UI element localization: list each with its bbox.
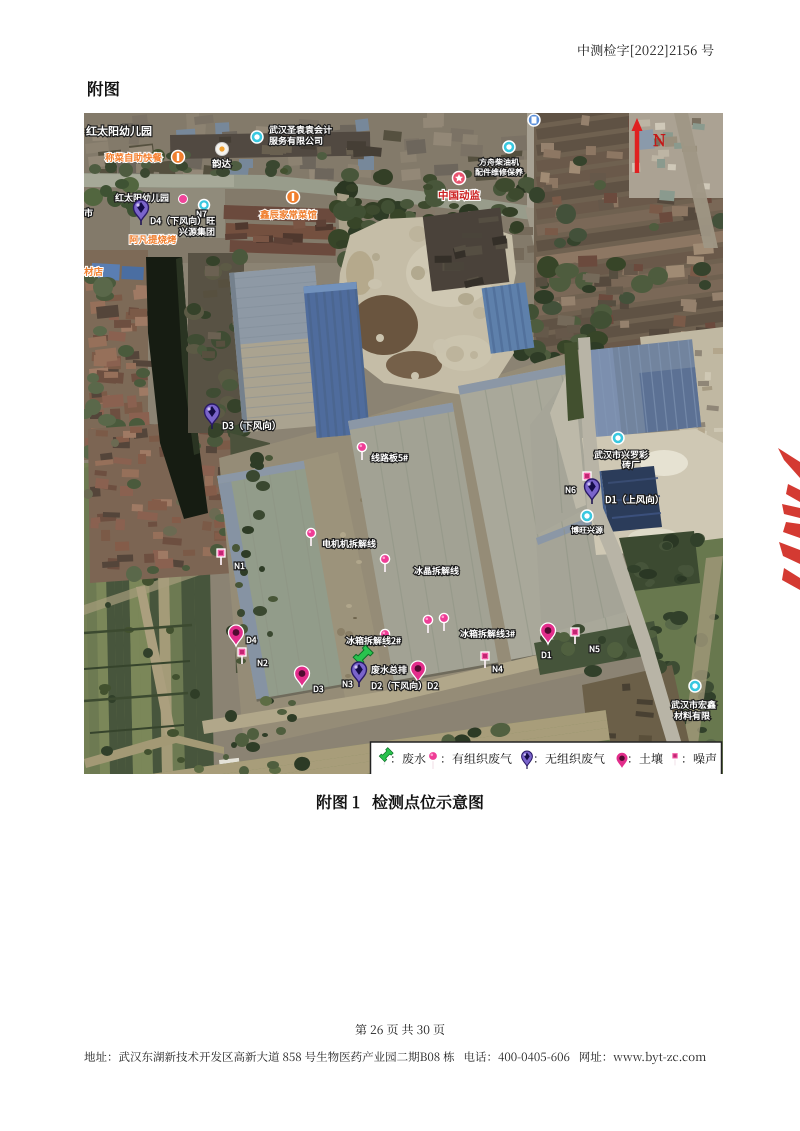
svg-text:红太阳幼儿园: 红太阳幼儿园 — [86, 123, 152, 139]
svg-text:市: 市 — [84, 206, 93, 219]
svg-text:：噪声: ：噪声 — [681, 750, 717, 767]
svg-text:阿凡提烧烤: 阿凡提烧烤 — [129, 232, 177, 246]
svg-text:D1: D1 — [541, 649, 552, 661]
svg-text:废水总排: 废水总排 — [371, 663, 407, 676]
svg-text:材店: 材店 — [84, 264, 104, 278]
svg-text:称菜自助快餐: 称菜自助快餐 — [105, 150, 163, 164]
svg-text:冰箱拆解线2#: 冰箱拆解线2# — [346, 634, 401, 647]
svg-text:冰晶拆解线: 冰晶拆解线 — [414, 564, 459, 577]
svg-text:：废水: ：废水 — [390, 750, 426, 767]
svg-text:D1（上风向）: D1（上风向） — [605, 492, 664, 506]
svg-text:：有组织废气: ：有组织废气 — [440, 750, 512, 767]
svg-text:服务有限公司: 服务有限公司 — [269, 134, 323, 147]
svg-text:中国动监: 中国动监 — [438, 188, 480, 203]
svg-text:：土壤: ：土壤 — [627, 750, 663, 767]
svg-text:：无组织废气: ：无组织废气 — [533, 750, 605, 767]
svg-text:N6: N6 — [565, 484, 576, 496]
svg-text:N5: N5 — [589, 643, 600, 655]
svg-text:N3: N3 — [342, 678, 353, 690]
svg-text:材料有限: 材料有限 — [673, 709, 711, 722]
svg-text:D4: D4 — [246, 634, 257, 646]
svg-text:D3（下风向）: D3（下风向） — [222, 418, 281, 432]
svg-text:D3: D3 — [313, 683, 324, 695]
svg-text:N2: N2 — [257, 657, 268, 669]
svg-text:电机机拆解线: 电机机拆解线 — [322, 537, 376, 550]
svg-text:冰箱拆解线3#: 冰箱拆解线3# — [460, 627, 515, 640]
svg-text:D2（下风向）D2: D2（下风向）D2 — [371, 679, 438, 692]
svg-text:N1: N1 — [234, 560, 245, 572]
svg-text:线路板5#: 线路板5# — [371, 451, 408, 464]
svg-text:配件维修保养: 配件维修保养 — [475, 167, 524, 178]
svg-text:砖厂: 砖厂 — [622, 458, 640, 471]
svg-text:N: N — [653, 128, 666, 151]
svg-text:博旺兴源: 博旺兴源 — [571, 525, 603, 536]
svg-text:韵达: 韵达 — [212, 156, 232, 170]
svg-text:鑫辰家常菜馆: 鑫辰家常菜馆 — [259, 207, 318, 221]
svg-text:N4: N4 — [492, 663, 503, 675]
svg-text:兴源集团: 兴源集团 — [179, 225, 215, 238]
